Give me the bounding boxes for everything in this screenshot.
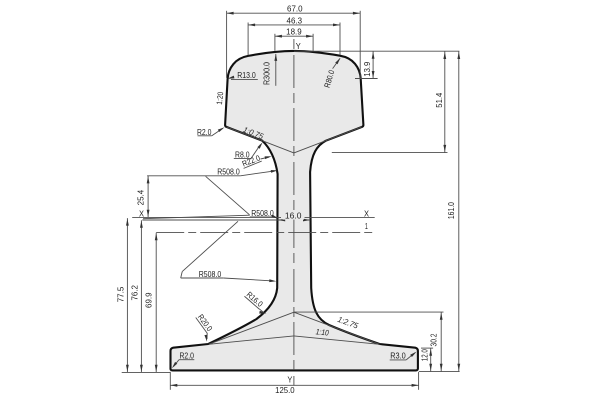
svg-text:13.9: 13.9 (363, 61, 372, 77)
svg-text:69.9: 69.9 (145, 292, 154, 308)
svg-text:16.0: 16.0 (285, 212, 302, 221)
svg-text:X: X (364, 210, 370, 219)
svg-text:R2.0: R2.0 (197, 128, 212, 137)
svg-text:76.2: 76.2 (130, 285, 139, 301)
svg-text:12.0: 12.0 (421, 349, 430, 361)
svg-text:Y: Y (287, 375, 293, 384)
svg-text:1: 1 (365, 222, 368, 231)
svg-text:R3.0: R3.0 (390, 352, 406, 361)
svg-text:125.0: 125.0 (275, 386, 295, 395)
svg-text:R508.0: R508.0 (199, 270, 222, 279)
svg-text:1:20: 1:20 (215, 91, 225, 105)
svg-text:X: X (139, 210, 145, 219)
svg-text:R300.0: R300.0 (263, 62, 272, 85)
svg-text:18.9: 18.9 (286, 28, 302, 37)
svg-text:67.0: 67.0 (287, 5, 303, 14)
svg-text:R2.0: R2.0 (179, 351, 194, 360)
svg-text:30.2: 30.2 (430, 333, 439, 346)
svg-text:R508.0: R508.0 (217, 167, 240, 176)
svg-text:46.3: 46.3 (287, 16, 303, 25)
svg-text:77.5: 77.5 (117, 286, 126, 302)
svg-text:R508.0: R508.0 (251, 209, 274, 218)
svg-text:Y: Y (296, 42, 302, 51)
svg-text:R13.0: R13.0 (237, 71, 256, 80)
svg-text:1:10: 1:10 (315, 327, 329, 337)
svg-text:25.4: 25.4 (136, 189, 145, 205)
svg-text:51.4: 51.4 (435, 92, 444, 108)
svg-text:161.0: 161.0 (447, 202, 456, 219)
